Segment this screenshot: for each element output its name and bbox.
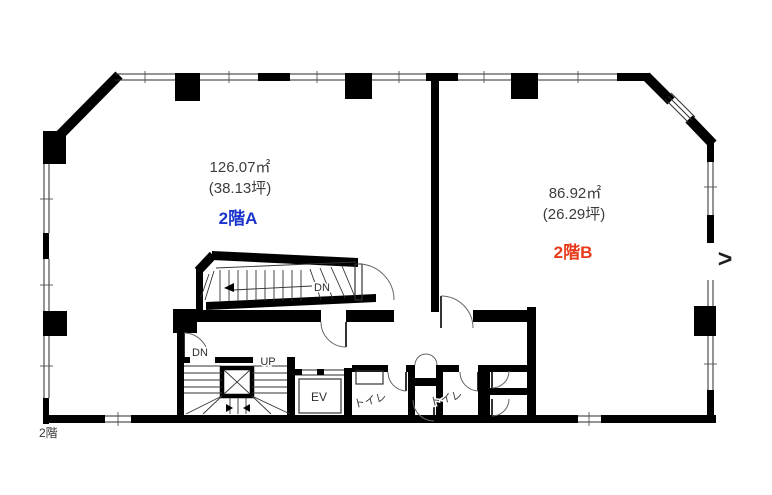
toilet-block: トイレ トイレ — [352, 354, 529, 423]
stair-direction-arrow — [243, 404, 250, 412]
door-arc — [460, 372, 478, 391]
wall-segment — [43, 233, 49, 259]
door-arc — [492, 371, 509, 388]
column — [694, 306, 716, 336]
chamfer-wall-top-right — [646, 76, 671, 101]
double-door-arc — [415, 354, 426, 365]
elevator-door-mark — [317, 369, 324, 375]
door-arc — [321, 322, 346, 347]
upper-staircase: DN — [196, 251, 394, 312]
door-arc — [492, 399, 509, 416]
door-arc — [441, 296, 473, 328]
column — [345, 73, 372, 99]
unit-b-name: 2階B — [554, 243, 593, 262]
doors — [321, 296, 473, 347]
column — [43, 311, 67, 336]
unit-a-area-tsubo: (38.13坪) — [209, 180, 272, 197]
wall-segment — [601, 415, 716, 423]
shaft-wall — [408, 365, 415, 423]
stair-stringer — [206, 294, 376, 310]
toilet-1-label: トイレ — [353, 391, 388, 411]
stair-wall — [196, 268, 203, 312]
unit-b-area-tsubo: (26.29坪) — [543, 206, 606, 223]
stair-wall — [215, 357, 253, 363]
wall-segment — [426, 73, 458, 81]
toilet-2-label: トイレ — [429, 389, 464, 409]
column — [511, 73, 538, 99]
wall-segment — [43, 415, 105, 423]
unit-a-area-m2: 126.07㎡ — [210, 159, 271, 176]
floor-plan-svg: DN DN — [0, 0, 772, 495]
core-stair-up-label: UP — [260, 356, 275, 368]
column — [175, 73, 200, 101]
wall-segment — [484, 388, 529, 395]
elevator: EV — [295, 368, 352, 423]
floor-caption: 2階 — [39, 425, 58, 440]
double-door-arc — [426, 354, 437, 365]
unit-b-area-m2: 86.92㎡ — [549, 185, 602, 202]
columns — [43, 73, 716, 336]
upper-stair-dn-label: DN — [314, 282, 330, 294]
stair-direction-arrow — [226, 404, 233, 412]
wall-segment — [707, 215, 714, 243]
wall-segment — [473, 310, 535, 322]
elevator-label: EV — [311, 390, 327, 404]
carousel-next-button[interactable]: > — [718, 245, 733, 273]
wall-segment — [344, 368, 352, 423]
elevator-door-mark — [295, 369, 302, 375]
chamfer-wall-top-right — [689, 119, 713, 144]
unit-divider-wall — [431, 73, 439, 312]
wall-segment — [197, 310, 321, 322]
stair-wall — [177, 357, 190, 363]
door-arc — [388, 372, 406, 391]
core-stair-dn-label: DN — [192, 347, 208, 359]
unit-a-labels: 126.07㎡ (38.13坪) 2階A — [209, 159, 272, 228]
unit-a-name: 2階A — [219, 209, 258, 228]
column — [43, 131, 66, 164]
toilet-cistern — [356, 371, 383, 384]
wall-segment — [346, 310, 394, 322]
door-panel — [355, 264, 362, 300]
stair-wall — [177, 333, 184, 423]
wall-segment — [258, 73, 290, 81]
column — [173, 309, 197, 333]
unit-b-labels: 86.92㎡ (26.29坪) 2階B — [543, 185, 606, 262]
floor-plan-image: DN DN — [0, 0, 772, 495]
core-stairwell: DN UP — [177, 333, 295, 423]
wall-segment — [131, 415, 578, 423]
shaft-duct — [415, 378, 437, 386]
wall-segment — [707, 143, 714, 162]
windows — [40, 71, 717, 426]
